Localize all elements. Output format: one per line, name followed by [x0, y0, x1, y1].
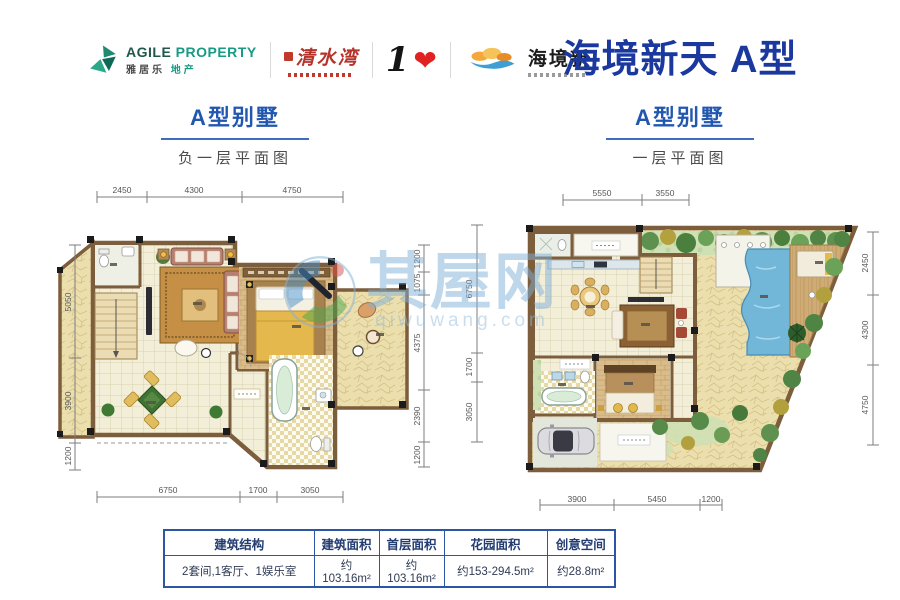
floorplan-left: 2450 4300 4750 5050 3900 1200 1200 1075 …: [57, 185, 430, 503]
plant: [102, 404, 115, 417]
spec-value-row: 2套间,1客厅、1娱乐室 约103.16m² 约103.16m² 约153-29…: [164, 556, 615, 588]
left-plan-heading: A型别墅 负一层平面图: [115, 100, 355, 168]
entry-terrace: [574, 234, 638, 256]
svg-text:4750: 4750: [860, 395, 870, 414]
spec-header-cell: 创意空间: [547, 530, 615, 556]
svg-text:3050: 3050: [301, 485, 320, 495]
spec-value-cell: 约103.16m²: [379, 556, 444, 588]
logo-divider: [450, 42, 451, 78]
qingshuiwan-subtext: [288, 73, 354, 77]
toilet: [581, 371, 590, 383]
right-plan-heading: A型别墅 一层平面图: [560, 100, 800, 168]
svg-text:3900: 3900: [63, 391, 73, 410]
svg-text:4750: 4750: [283, 185, 302, 195]
floorplans-canvas: 2450 4300 4750 5050 3900 1200 1200 1075 …: [0, 175, 900, 525]
qingshuiwan-logo: 清水湾: [284, 43, 359, 77]
spec-value-cell: 2套间,1客厅、1娱乐室: [164, 556, 314, 588]
right-plan-title: A型别墅: [560, 100, 800, 132]
spec-header-cell: 建筑结构: [164, 530, 314, 556]
agile-en-1: AGILE: [126, 44, 171, 60]
spec-table: 建筑结构 建筑面积 首层面积 花园面积 创意空间 2套间,1客厅、1娱乐室 约1…: [163, 529, 616, 588]
agile-cn-1: 雅居乐: [126, 65, 165, 76]
svg-text:6750: 6750: [159, 485, 178, 495]
svg-text:1200: 1200: [412, 249, 422, 268]
one-numeral: 1: [386, 40, 410, 80]
kitchen: [548, 260, 644, 269]
haijingxin-wave-icon: [464, 46, 520, 74]
plant: [210, 406, 223, 419]
basement-stairs: [95, 293, 137, 359]
svg-text:5550: 5550: [593, 188, 612, 198]
svg-text:1700: 1700: [249, 485, 268, 495]
spec-value-cell: 约103.16m²: [314, 556, 379, 588]
floorplan-page: AGILE PROPERTY 雅居乐 地产 清水湾 1 ❤: [0, 0, 900, 600]
basement-bedroom: [239, 267, 333, 369]
qingshuiwan-text: 清水湾: [296, 43, 359, 70]
svg-text:5050: 5050: [63, 292, 73, 311]
logo-divider: [372, 42, 373, 78]
swimming-pool: [742, 249, 790, 355]
agile-property-logo: AGILE PROPERTY 雅居乐 地产: [86, 43, 257, 77]
first-floor-bathroom: [538, 371, 595, 413]
spec-value-cell: 约153-294.5m²: [444, 556, 547, 588]
agile-logo-icon: [86, 43, 120, 77]
spec-header-row: 建筑结构 建筑面积 首层面积 花园面积 创意空间: [164, 530, 615, 556]
first-floor-bedroom: [597, 359, 670, 418]
first-floor-stairs: [640, 257, 672, 293]
heading-underline: [606, 138, 754, 140]
floorplan-right: 5550 3550 6750 1700 3050 2450 4300 4750 …: [464, 188, 879, 511]
qingshuiwan-seal-icon: [284, 52, 293, 61]
one-love-logo: 1 ❤: [386, 40, 437, 80]
agile-en-2: PROPERTY: [176, 44, 257, 60]
spec-header-cell: 建筑面积: [314, 530, 379, 556]
spec-value-cell: 约28.8m²: [547, 556, 615, 588]
svg-text:4300: 4300: [185, 185, 204, 195]
page-title: 海境新天 A型: [522, 28, 838, 83]
coffee-table: [175, 340, 197, 356]
svg-text:6750: 6750: [464, 279, 474, 298]
left-plan-title: A型别墅: [115, 100, 355, 132]
spec-header-cell: 花园面积: [444, 530, 547, 556]
heart-icon: ❤: [413, 44, 436, 77]
svg-text:2390: 2390: [412, 406, 422, 425]
svg-text:1700: 1700: [464, 357, 474, 376]
toilet: [311, 437, 322, 452]
svg-text:3900: 3900: [568, 494, 587, 504]
spec-header-cell: 首层面积: [379, 530, 444, 556]
svg-text:2450: 2450: [860, 253, 870, 272]
basement-bathroom-bottom: [269, 355, 333, 465]
svg-text:1075: 1075: [412, 273, 422, 292]
svg-text:1200: 1200: [63, 446, 73, 465]
header-logos: AGILE PROPERTY 雅居乐 地产 清水湾 1 ❤: [86, 34, 591, 86]
svg-text:5450: 5450: [648, 494, 667, 504]
svg-text:3550: 3550: [656, 188, 675, 198]
logo-divider: [270, 42, 271, 78]
tv-cabinet: [628, 297, 664, 302]
agile-logo-text: AGILE PROPERTY 雅居乐 地产: [126, 44, 257, 76]
car: [538, 425, 594, 458]
svg-text:1200: 1200: [412, 445, 422, 464]
svg-text:4300: 4300: [860, 320, 870, 339]
bed: [256, 311, 314, 361]
svg-text:4375: 4375: [412, 333, 422, 352]
svg-text:3050: 3050: [464, 402, 474, 421]
left-plan-subtitle: 负一层平面图: [115, 147, 355, 168]
heading-underline: [161, 138, 309, 140]
svg-text:1200: 1200: [702, 494, 721, 504]
garage: [533, 418, 597, 467]
planter-strip: [533, 360, 541, 410]
first-floor-bathroom-top: [536, 234, 572, 256]
svg-text:2450: 2450: [113, 185, 132, 195]
sofa: [612, 311, 623, 339]
tv-cabinet: [146, 287, 152, 335]
agile-cn-2: 地产: [171, 65, 197, 76]
right-plan-subtitle: 一层平面图: [560, 147, 800, 168]
